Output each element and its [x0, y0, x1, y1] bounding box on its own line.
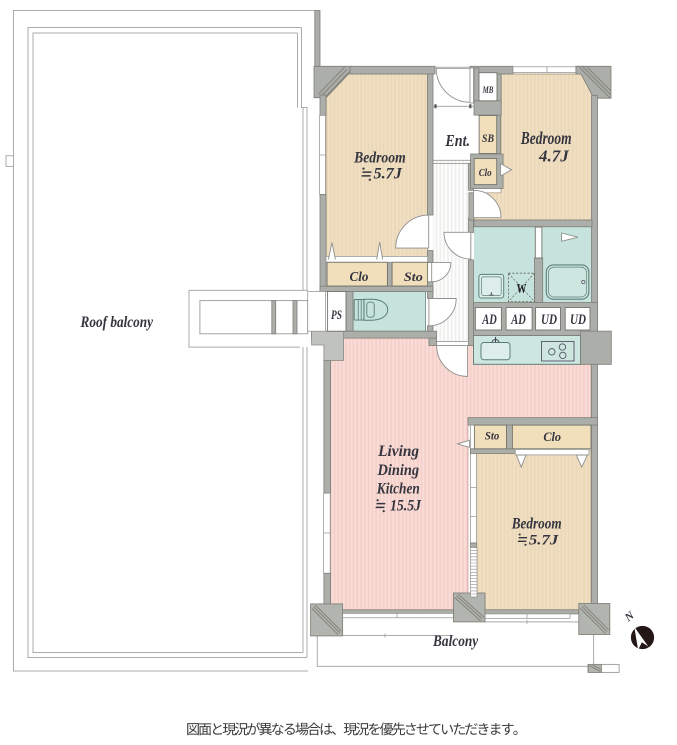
- svg-text:Clo: Clo: [479, 167, 492, 179]
- svg-text:4.7J: 4.7J: [538, 147, 569, 166]
- svg-text:Kitchen: Kitchen: [376, 480, 420, 497]
- svg-text:5.7J: 5.7J: [374, 166, 404, 183]
- svg-text:UD: UD: [541, 312, 557, 328]
- svg-text:W: W: [517, 281, 527, 296]
- svg-text:SB: SB: [482, 131, 494, 145]
- svg-text:Living: Living: [377, 443, 419, 460]
- svg-text:Sto: Sto: [404, 270, 423, 284]
- svg-text:5.7J: 5.7J: [529, 532, 559, 548]
- svg-text:Clo: Clo: [543, 429, 561, 444]
- svg-text:Balcony: Balcony: [432, 633, 479, 650]
- svg-text:Bedroom: Bedroom: [520, 128, 572, 148]
- svg-text:Sto: Sto: [485, 429, 499, 443]
- svg-text:UD: UD: [570, 312, 586, 328]
- svg-text:PS: PS: [331, 308, 342, 322]
- svg-text:Bedroom: Bedroom: [511, 515, 562, 532]
- svg-text:AD: AD: [482, 312, 497, 328]
- svg-text:Ent.: Ent.: [445, 131, 471, 150]
- svg-text:MB: MB: [482, 85, 493, 95]
- svg-text:AD: AD: [511, 312, 526, 328]
- svg-text:Clo: Clo: [350, 269, 369, 284]
- svg-text:15.5J: 15.5J: [390, 497, 422, 514]
- svg-text:Bedroom: Bedroom: [353, 149, 405, 166]
- svg-text:Dining: Dining: [377, 462, 420, 479]
- svg-text:Roof balcony: Roof balcony: [80, 314, 154, 331]
